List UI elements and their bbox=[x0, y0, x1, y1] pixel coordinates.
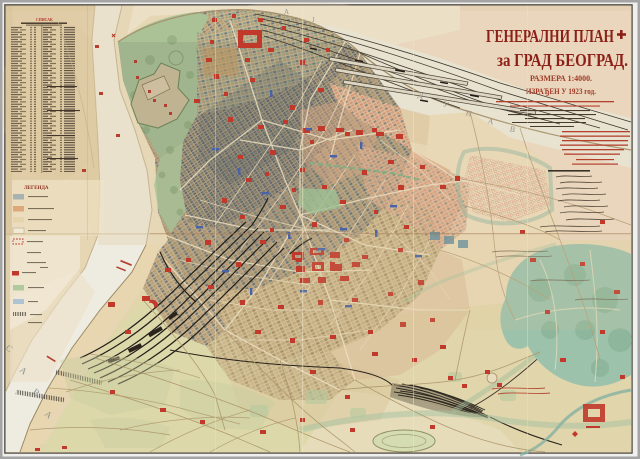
svg-text:СПИСАК: СПИСАК bbox=[36, 18, 53, 22]
svg-text:ИЗРАЂЕН У 1923 год.: ИЗРАЂЕН У 1923 год. bbox=[526, 86, 596, 96]
svg-text:ГЕНЕРАЛНИ ПЛАН: ГЕНЕРАЛНИ ПЛАН bbox=[486, 26, 614, 46]
svg-text:Ј: Ј bbox=[312, 16, 315, 24]
svg-text:ЛЕГЕНДА: ЛЕГЕНДА bbox=[24, 186, 49, 191]
svg-text:А: А bbox=[284, 8, 289, 16]
svg-text:РАЗМЕРА 1:4000.: РАЗМЕРА 1:4000. bbox=[530, 73, 592, 83]
svg-text:за ГРАД БЕОГРАД.: за ГРАД БЕОГРАД. bbox=[497, 50, 628, 70]
